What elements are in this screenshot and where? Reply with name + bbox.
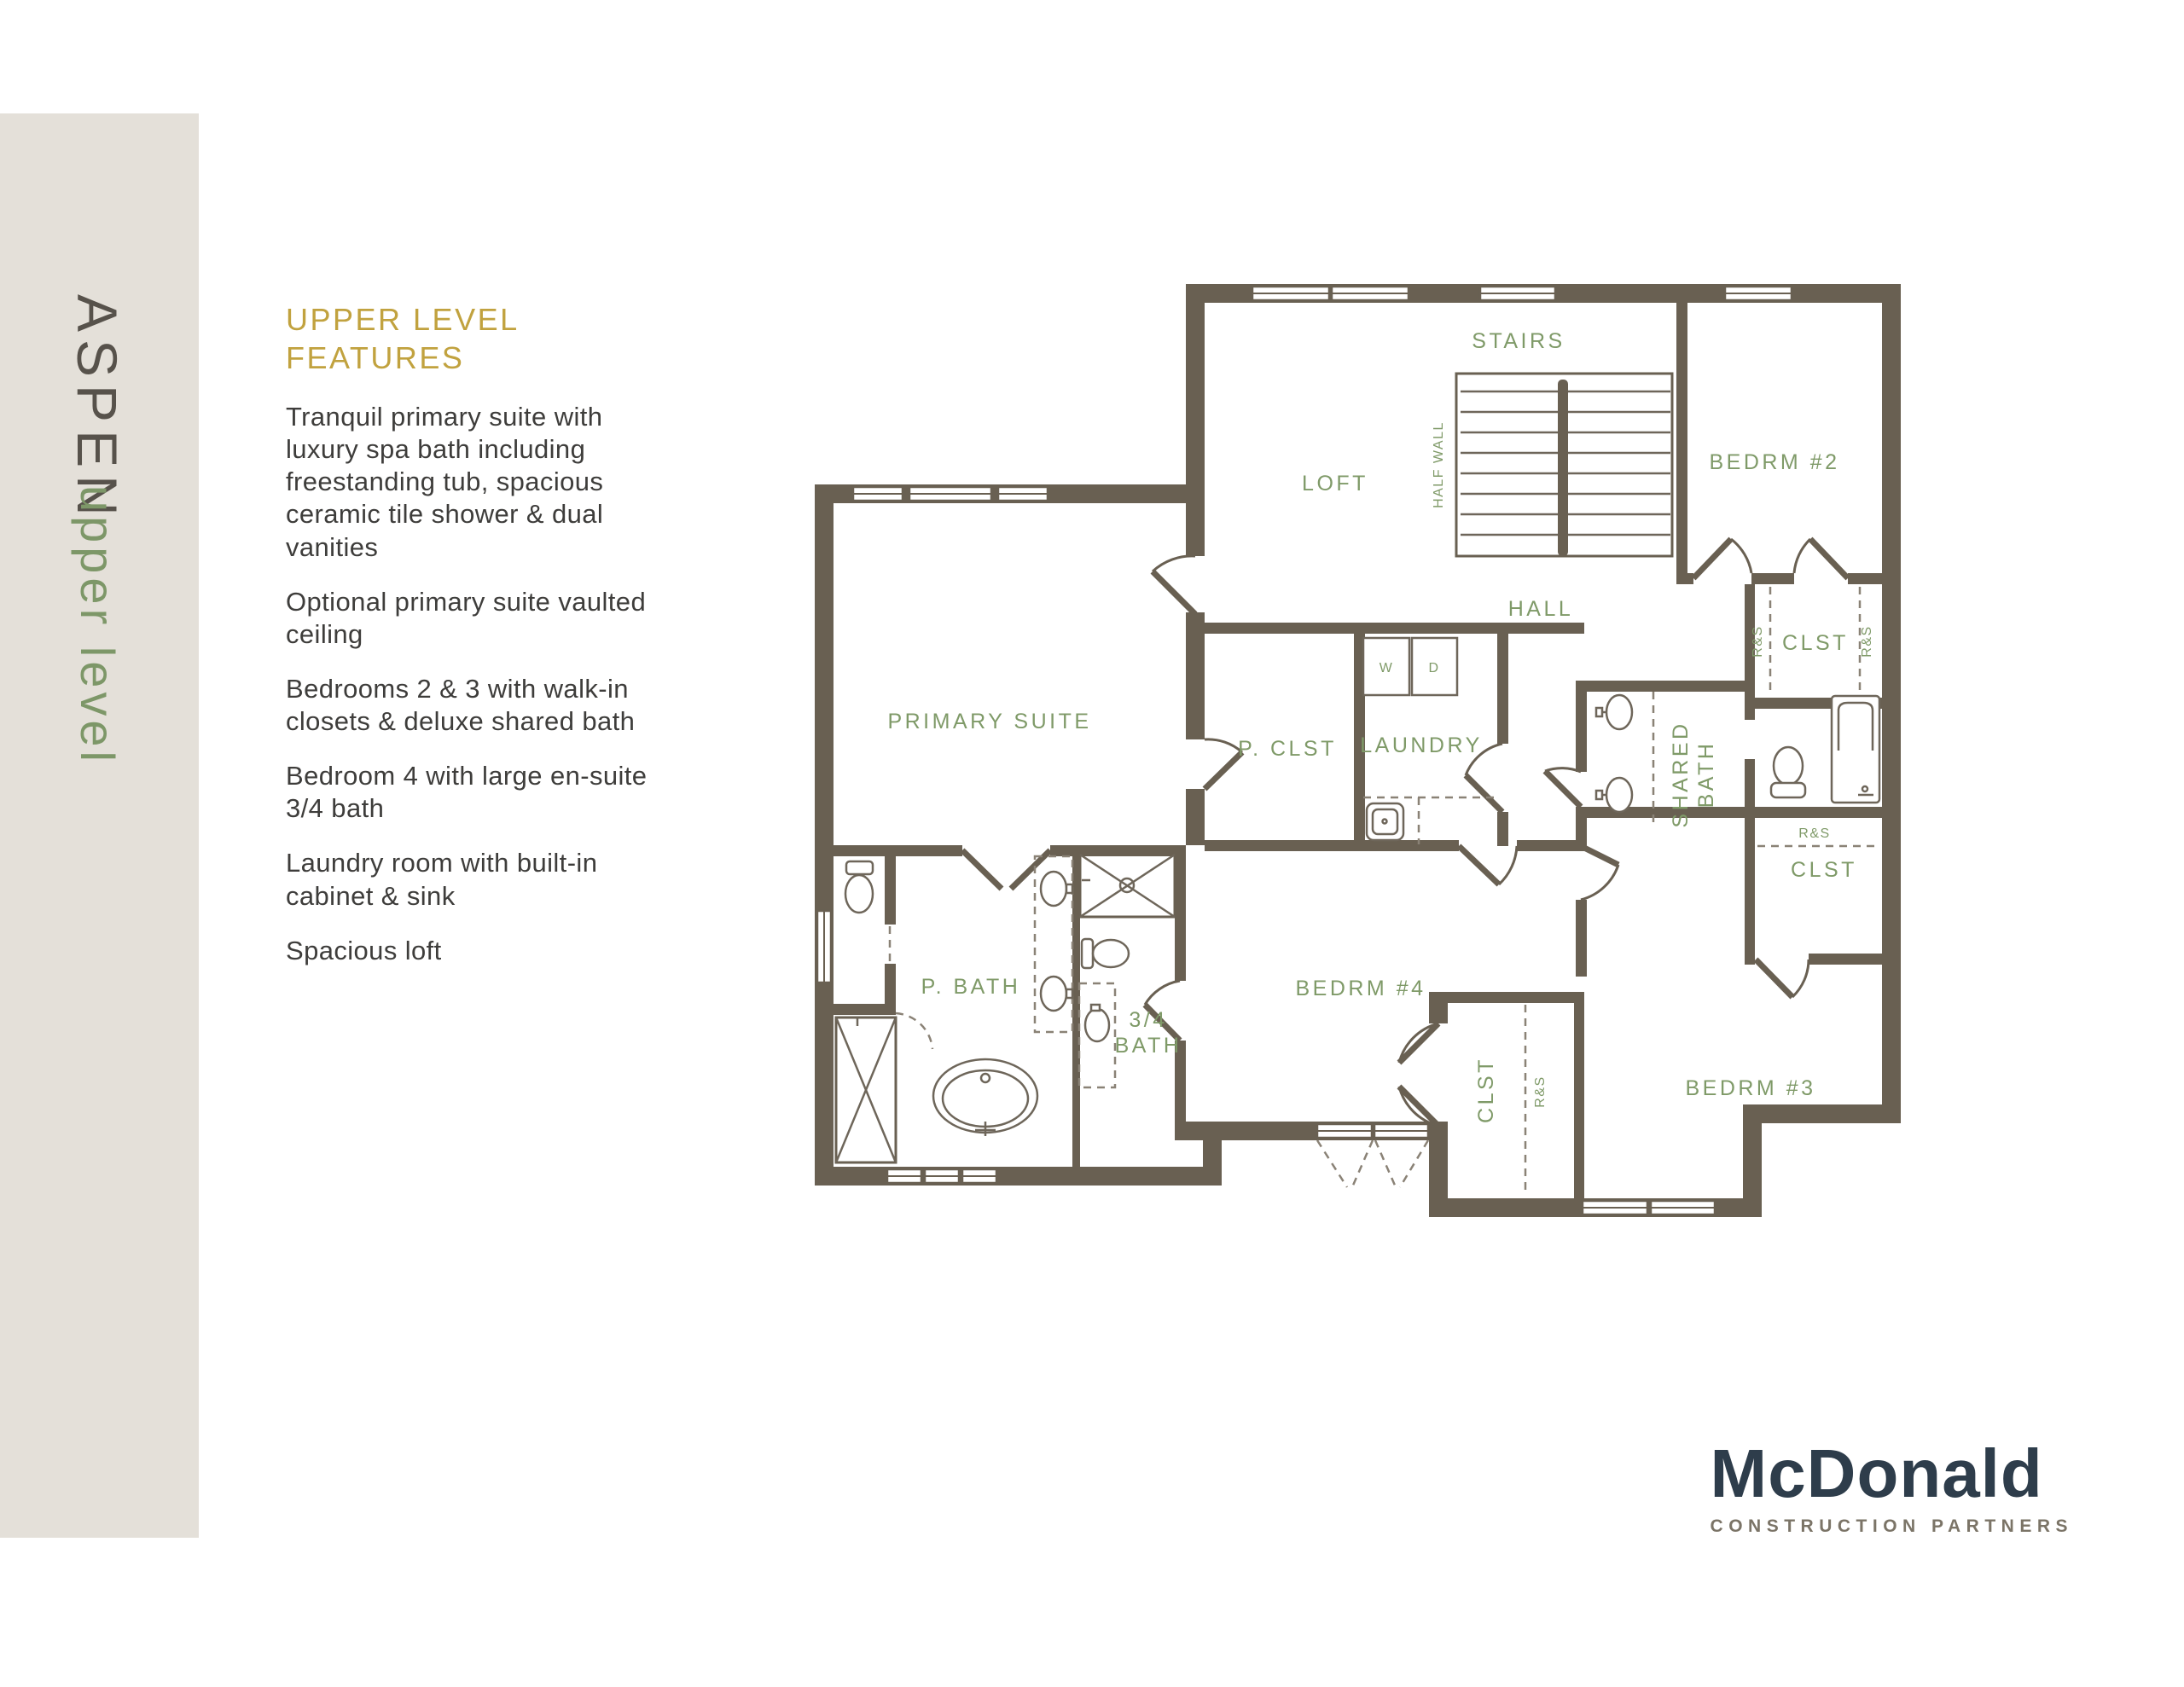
bath34-shower-icon xyxy=(1080,855,1175,917)
builder-name: McDonald xyxy=(1711,1440,2073,1508)
shared-bath-sinks-icon xyxy=(1596,692,1653,823)
builder-logo: McDonald CONSTRUCTION PARTNERS xyxy=(1711,1440,2073,1537)
features-heading: UPPER LEVEL FEATURES xyxy=(286,300,654,377)
shared-bath-toilet-icon xyxy=(1771,747,1805,797)
sidebar: ASPEN upper level xyxy=(0,113,199,1538)
feature-item: Bedrooms 2 & 3 with walk-in closets & de… xyxy=(286,673,654,738)
feature-item: Optional primary suite vaulted ceiling xyxy=(286,586,654,651)
bath34-sink-icon xyxy=(1079,983,1115,1087)
room-label-primary-suite: PRIMARY SUITE xyxy=(887,710,1091,733)
room-label-shared-bath-1: SHARED xyxy=(1669,721,1693,827)
shared-bath-tub-icon xyxy=(1832,696,1879,803)
room-label-34bath-2: BATH xyxy=(1115,1034,1182,1058)
bath34-toilet-icon xyxy=(1082,939,1129,968)
brochure-page: { "sidebar": { "title": "ASPEN", "subtit… xyxy=(0,0,2184,1687)
closet-label-bedrm4: CLST xyxy=(1474,1057,1498,1123)
rod-shelf-label: R&S xyxy=(1751,625,1765,657)
room-label-bedrm2: BEDRM #2 xyxy=(1709,450,1839,474)
room-label-loft: LOFT xyxy=(1302,472,1368,496)
laundry-sink-icon xyxy=(1363,797,1497,844)
room-label-half-wall: HALF WALL xyxy=(1432,421,1446,508)
rod-shelf-label: R&S xyxy=(1533,1075,1548,1107)
room-label-stairs: STAIRS xyxy=(1472,329,1565,353)
features-list: UPPER LEVEL FEATURES Tranquil primary su… xyxy=(286,300,654,989)
room-label-34bath-1: 3/4 xyxy=(1129,1008,1167,1032)
room-label-hall: HALL xyxy=(1508,597,1574,621)
room-label-bedrm4: BEDRM #4 xyxy=(1295,977,1426,1000)
feature-item: Spacious loft xyxy=(286,935,654,967)
stairs-icon xyxy=(1456,374,1672,556)
primary-shower-icon xyxy=(836,1017,896,1162)
feature-item: Tranquil primary suite with luxury spa b… xyxy=(286,401,654,564)
plan-level: upper level xyxy=(70,485,125,766)
primary-vanity-icon xyxy=(1035,856,1072,1032)
closet-label-bedrm3: CLST xyxy=(1791,858,1857,882)
floor-plan-drawing: LOFT STAIRS HALF WALL BEDRM #2 HALL PRIM… xyxy=(810,273,1928,1220)
room-label-p-bath: P. BATH xyxy=(921,975,1021,999)
floor-plan: LOFT STAIRS HALF WALL BEDRM #2 HALL PRIM… xyxy=(810,273,1928,1220)
room-label-p-clst: P. CLST xyxy=(1238,737,1337,761)
room-label-bedrm3: BEDRM #3 xyxy=(1685,1076,1815,1100)
room-label-laundry: LAUNDRY xyxy=(1360,733,1483,757)
feature-item: Laundry room with built-in cabinet & sin… xyxy=(286,847,654,912)
room-label-shared-bath-2: BATH xyxy=(1694,741,1718,809)
rod-shelf-label: R&S xyxy=(1798,826,1830,841)
rod-shelf-label: R&S xyxy=(1860,625,1874,657)
primary-toilet-icon xyxy=(845,861,873,913)
builder-tagline: CONSTRUCTION PARTNERS xyxy=(1711,1516,2073,1537)
feature-item: Bedroom 4 with large en-suite 3/4 bath xyxy=(286,760,654,825)
freestanding-tub-icon xyxy=(933,1059,1037,1136)
washer-label: W xyxy=(1380,661,1394,675)
dryer-label: D xyxy=(1428,661,1439,675)
closet-label-bedrm2: CLST xyxy=(1782,631,1849,655)
